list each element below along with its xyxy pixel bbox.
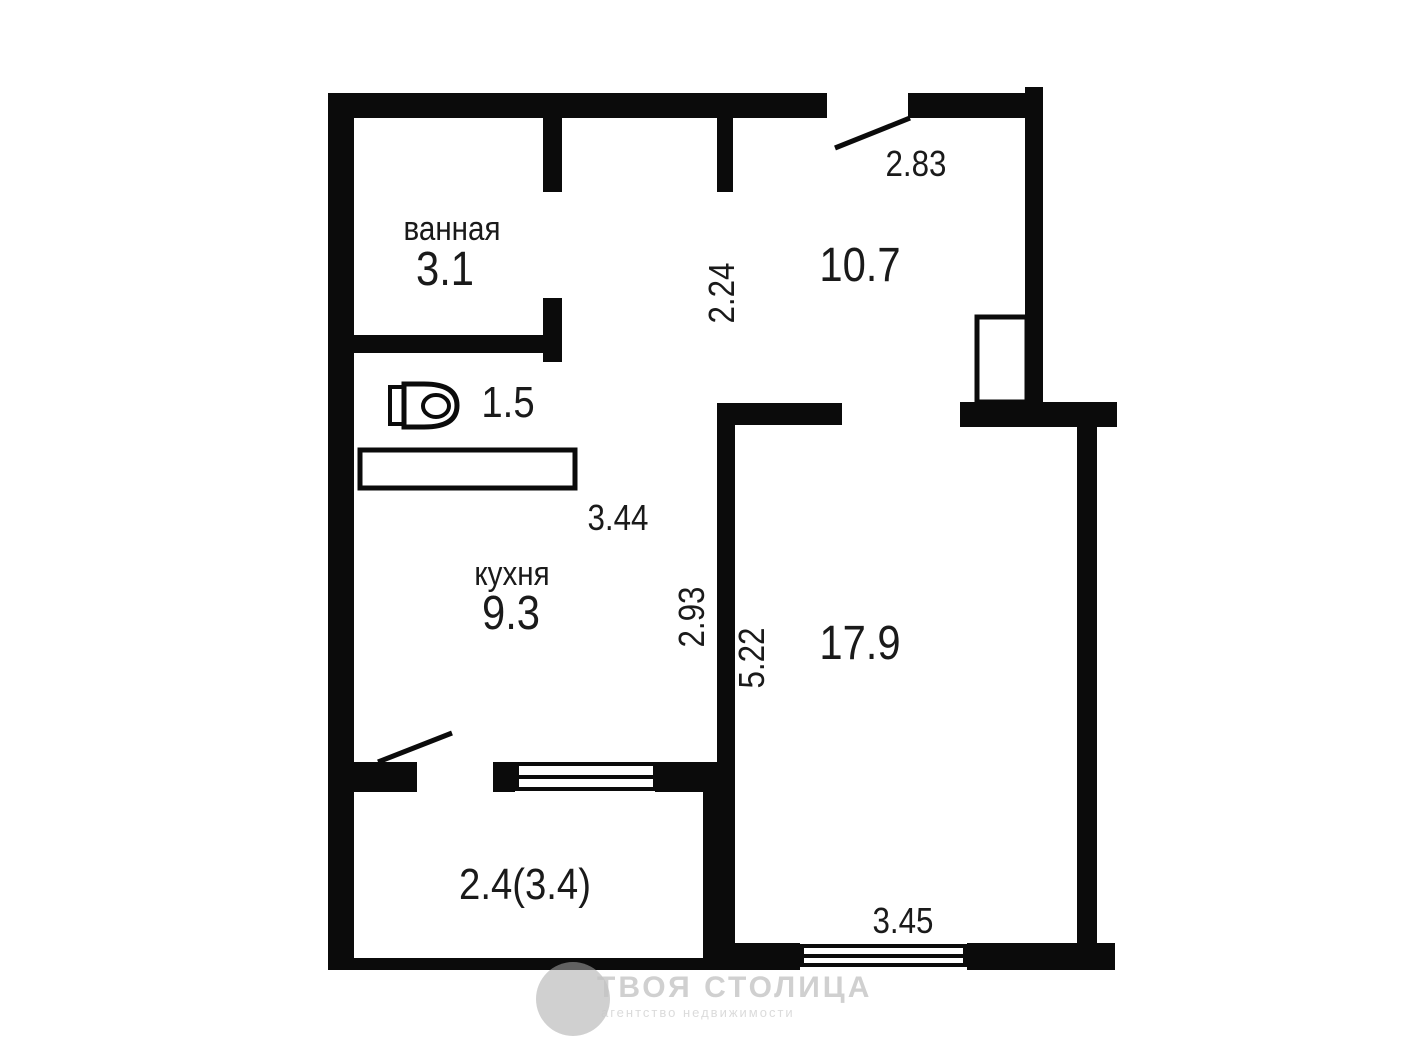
kitchen-area-label: 9.3 <box>482 590 540 638</box>
ventilation-shaft-icon <box>977 317 1027 402</box>
dim-entry-width: 2.83 <box>886 146 947 182</box>
living-room-area-label: 17.9 <box>819 620 900 668</box>
balcony-area-label: 2.4(3.4) <box>459 863 591 907</box>
watermark-title: ТВОЯ СТОЛИЦА <box>597 971 872 1005</box>
floor-plan: ванная 3.1 1.5 кухня 9.3 10.7 17.9 2.4(3… <box>0 0 1417 1064</box>
dim-hallway-depth: 2.24 <box>704 263 740 324</box>
balcony-door-swing-line <box>378 733 452 762</box>
kitchen-name-label: кухня <box>474 557 549 591</box>
dim-living-depth: 5.22 <box>734 628 770 689</box>
dim-kitchen-depth: 2.93 <box>674 587 710 648</box>
toilet-icon <box>390 384 457 427</box>
bathroom-name-label: ванная <box>404 212 501 246</box>
wc-area-label: 1.5 <box>481 381 534 425</box>
watermark-subtitle: агентство недвижимости <box>601 1005 795 1020</box>
hallway-area-label: 10.7 <box>819 242 900 290</box>
dim-kitchen-width: 3.44 <box>588 500 649 536</box>
bathroom-area-label: 3.1 <box>416 246 474 294</box>
bathtub-icon <box>360 450 575 488</box>
dim-living-width: 3.45 <box>873 903 934 939</box>
